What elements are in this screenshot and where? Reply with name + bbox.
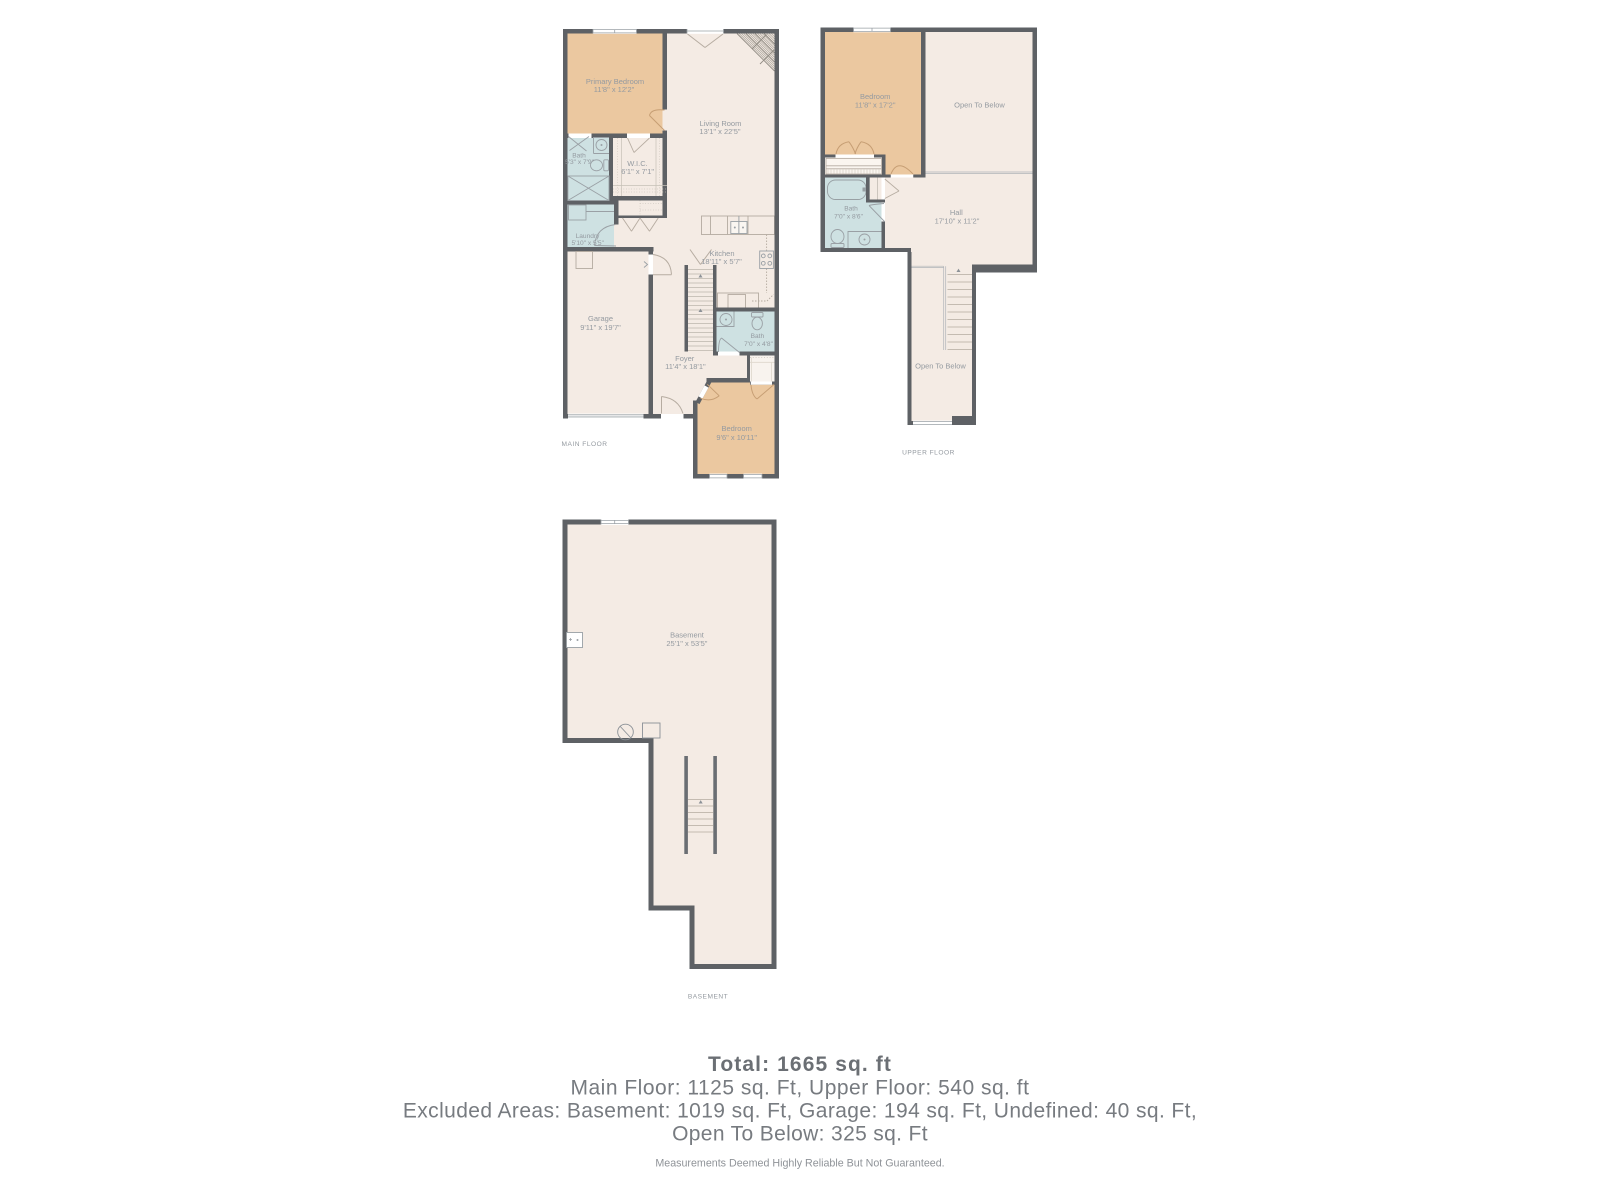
svg-text:18'11" x 5'7": 18'11" x 5'7" <box>701 257 742 266</box>
svg-text:Bath: Bath <box>751 333 765 340</box>
svg-text:11'8" x 12'2": 11'8" x 12'2" <box>594 85 635 94</box>
svg-text:9'6" x 10'11": 9'6" x 10'11" <box>716 433 757 442</box>
svg-text:Open To Below: Open To Below <box>954 101 1005 110</box>
svg-text:Open To Below: 325 sq. Ft: Open To Below: 325 sq. Ft <box>672 1123 928 1146</box>
svg-text:5'3" x 7'9": 5'3" x 7'9" <box>565 159 594 166</box>
svg-text:Bath: Bath <box>844 206 858 213</box>
svg-text:5'10" x 5'5": 5'10" x 5'5" <box>571 240 604 247</box>
svg-text:Garage: Garage <box>588 314 613 323</box>
svg-text:6'1" x 7'1": 6'1" x 7'1" <box>621 167 654 176</box>
svg-text:Bedroom: Bedroom <box>721 424 751 433</box>
svg-text:Laundry: Laundry <box>576 233 601 240</box>
svg-text:17'10" x 11'2": 17'10" x 11'2" <box>935 217 980 226</box>
svg-text:11'4" x 18'1": 11'4" x 18'1" <box>665 362 706 371</box>
svg-text:MAIN FLOOR: MAIN FLOOR <box>561 441 607 448</box>
svg-text:BASEMENT: BASEMENT <box>688 994 728 1001</box>
svg-text:UPPER FLOOR: UPPER FLOOR <box>902 450 955 457</box>
svg-text:11'8" x 17'2": 11'8" x 17'2" <box>855 101 896 110</box>
svg-text:25'1" x 53'5": 25'1" x 53'5" <box>666 639 707 648</box>
svg-text:13'1" x 22'5": 13'1" x 22'5" <box>699 127 740 136</box>
svg-text:Main Floor: 1125 sq. Ft, Upper: Main Floor: 1125 sq. Ft, Upper Floor: 54… <box>571 1077 1030 1100</box>
svg-text:Measurements Deemed Highly Rel: Measurements Deemed Highly Reliable But … <box>655 1158 944 1170</box>
svg-text:Open To Below: Open To Below <box>915 362 966 371</box>
svg-text:Total: 1665 sq. ft: Total: 1665 sq. ft <box>708 1053 892 1076</box>
svg-text:7'0" x 8'6": 7'0" x 8'6" <box>834 214 863 221</box>
svg-text:7'0" x 4'8": 7'0" x 4'8" <box>744 341 773 348</box>
svg-text:Excluded Areas: Basement: 1019: Excluded Areas: Basement: 1019 sq. Ft, G… <box>403 1100 1197 1123</box>
svg-text:9'11" x 19'7": 9'11" x 19'7" <box>580 323 621 332</box>
